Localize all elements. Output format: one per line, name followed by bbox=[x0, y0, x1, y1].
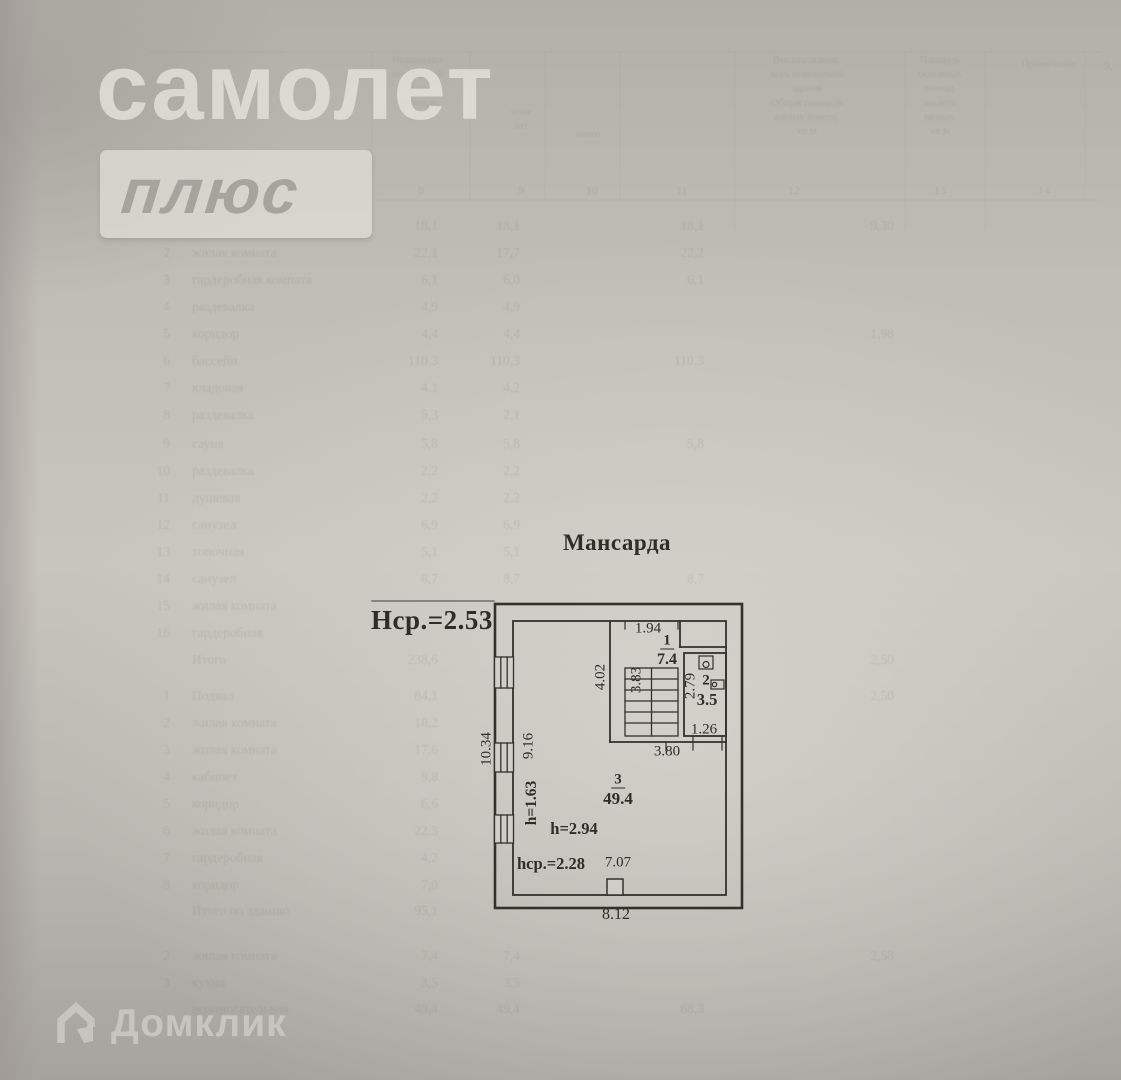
sink-icon bbox=[711, 680, 724, 689]
dim-left-outer: 10.34 bbox=[479, 732, 496, 766]
room3-number: 3 bbox=[611, 772, 625, 789]
dim-stair-flight: 3.83 bbox=[629, 667, 646, 693]
domclick-watermark-label: Домклик bbox=[111, 1004, 287, 1043]
floor-title: Мансарда bbox=[563, 530, 671, 556]
domclick-house-icon bbox=[50, 998, 102, 1048]
room2-number: 2 bbox=[702, 673, 710, 690]
dim-room3-width: 7.07 bbox=[605, 855, 631, 872]
floor-plan-drawing bbox=[0, 0, 1121, 1080]
height-average: hср.=2.28 bbox=[517, 854, 585, 874]
dim-stair-top-width: 1.94 bbox=[635, 621, 661, 638]
window-icon bbox=[495, 657, 514, 843]
dim-stairwell-depth: 4.02 bbox=[593, 664, 610, 690]
dim-room2-width: 1.26 bbox=[691, 722, 717, 739]
dim-left-inner: 9.16 bbox=[521, 733, 538, 759]
scanned-floor-plan-page: Назначение помещений и их площадь кв.мэт… bbox=[0, 0, 1121, 1080]
height-low-wall: h=1.63 bbox=[523, 781, 541, 826]
avg-height-note: Нср.=2.53 bbox=[371, 605, 493, 636]
domclick-watermark: Домклик bbox=[50, 998, 287, 1048]
room1-area: 7.4 bbox=[657, 651, 677, 669]
chimney-icon bbox=[607, 879, 623, 895]
room3-area: 49.4 bbox=[603, 789, 633, 809]
toilet-icon bbox=[699, 656, 713, 669]
height-main: h=2.94 bbox=[550, 819, 597, 839]
room2-area: 3.5 bbox=[697, 690, 718, 710]
dim-corridor-width: 3.80 bbox=[654, 744, 680, 761]
dim-bottom-outer: 8.12 bbox=[602, 906, 630, 924]
room1-number: 1 bbox=[660, 633, 674, 650]
